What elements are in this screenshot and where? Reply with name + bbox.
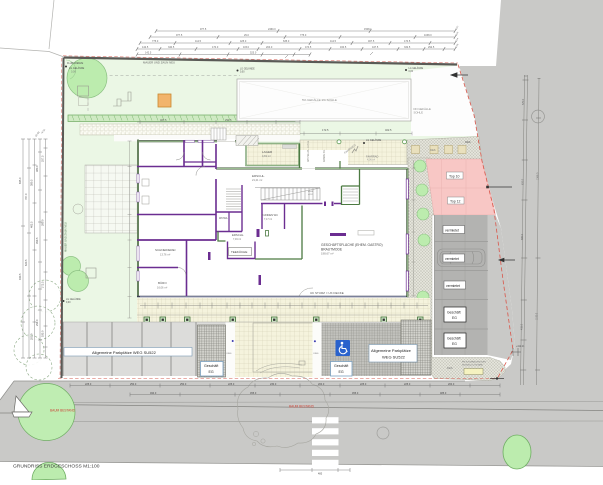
svg-text:KIES: KIES	[314, 353, 320, 355]
svg-text:200.0: 200.0	[318, 383, 325, 386]
svg-text:294.0: 294.0	[35, 319, 39, 326]
svg-text:467.5: 467.5	[368, 40, 375, 43]
svg-text:13,76 m²: 13,76 m²	[160, 253, 170, 257]
svg-text:977.5: 977.5	[176, 34, 183, 37]
svg-text:455.0: 455.0	[521, 323, 524, 330]
svg-text:0,00: 0,00	[71, 71, 76, 74]
svg-text:ERSCHL.: ERSCHL.	[232, 233, 244, 237]
svg-text:767.0: 767.0	[24, 193, 28, 200]
svg-text:KUNDEN WC: KUNDEN WC	[262, 213, 278, 217]
svg-text:845.0: 845.0	[18, 177, 22, 184]
svg-text:WC/WA: WC/WA	[219, 217, 228, 220]
svg-text:1102.0: 1102.0	[536, 312, 539, 320]
svg-text:332.5: 332.5	[404, 46, 411, 49]
svg-text:490.0: 490.0	[150, 392, 157, 395]
svg-text:Top 12: Top 12	[450, 199, 461, 203]
svg-text:Geschäft: Geschäft	[447, 311, 461, 315]
svg-text:380.5: 380.5	[30, 179, 34, 186]
svg-text:vermietet: vermietet	[445, 257, 459, 261]
svg-text:GESCHÄFTSFLÄCHE (EHEM. GASTRO): GESCHÄFTSFLÄCHE (EHEM. GASTRO)	[321, 243, 383, 247]
svg-text:172.5: 172.5	[322, 128, 329, 132]
svg-text:170.0: 170.0	[212, 46, 219, 49]
svg-text:399.5: 399.5	[35, 237, 39, 244]
svg-text:250.0: 250.0	[130, 383, 137, 386]
svg-text:142.5: 142.5	[142, 46, 149, 49]
svg-text:21,21 m²: 21,21 m²	[252, 178, 262, 182]
svg-text:MAUER UND ZAUN NEU: MAUER UND ZAUN NEU	[64, 222, 68, 252]
svg-text:467.5: 467.5	[160, 118, 167, 122]
svg-text:775.0: 775.0	[300, 34, 307, 37]
svg-text:160.5: 160.5	[340, 46, 347, 49]
svg-text:29.0: 29.0	[244, 34, 249, 37]
svg-text:940.5: 940.5	[18, 273, 22, 280]
svg-text:198,67 m²: 198,67 m²	[321, 252, 334, 256]
svg-text:EG: EG	[452, 316, 457, 320]
svg-text:1508.1: 1508.1	[364, 28, 372, 31]
svg-text:292.5: 292.5	[428, 46, 435, 49]
svg-text:575.0: 575.0	[522, 98, 525, 105]
svg-text:0,00: 0,00	[409, 71, 414, 73]
svg-text:FFL/DN.BRAUTMODEN: FFL/DN.BRAUTMODEN	[462, 361, 486, 364]
svg-text:2460.0: 2460.0	[268, 28, 276, 31]
svg-text:474.5: 474.5	[305, 46, 312, 49]
svg-text:775.0: 775.0	[152, 40, 159, 43]
svg-text:225.0: 225.0	[85, 383, 92, 386]
svg-text:112.5: 112.5	[330, 40, 337, 43]
svg-text:485.0: 485.0	[440, 392, 447, 395]
svg-text:620.5: 620.5	[24, 259, 28, 266]
svg-text:BAUM BESTAND: BAUM BESTAND	[289, 405, 315, 409]
svg-text:635.0: 635.0	[283, 40, 290, 43]
svg-text:977.5: 977.5	[200, 28, 207, 31]
svg-text:225.0: 225.0	[404, 383, 411, 386]
svg-text:272.5: 272.5	[41, 281, 45, 288]
svg-text:455.0: 455.0	[250, 392, 257, 395]
svg-text:4,06 m²: 4,06 m²	[367, 159, 375, 162]
svg-text:MAUER UND ZAUN NEU: MAUER UND ZAUN NEU	[143, 61, 175, 65]
svg-text:1268.0: 1268.0	[537, 172, 540, 180]
svg-text:KIES: KIES	[227, 353, 233, 355]
svg-text:GRUNDRISS ERDGESCHOSS M1:100: GRUNDRISS ERDGESCHOSS M1:100	[13, 464, 100, 470]
svg-text:Allgemeine Parkplätze WEG SU52: Allgemeine Parkplätze WEG SU522	[92, 350, 157, 355]
svg-text:vermietet: vermietet	[446, 284, 460, 288]
svg-text:257.5: 257.5	[41, 155, 45, 162]
svg-text:UK STURZ = UK DECKE: UK STURZ = UK DECKE	[310, 291, 344, 295]
svg-text:400: 400	[318, 473, 323, 476]
svg-text:KIES: KIES	[465, 141, 471, 144]
svg-text:7,17 m²: 7,17 m²	[264, 218, 272, 221]
svg-text:EG: EG	[209, 370, 214, 374]
svg-text:SOHLE: SOHLE	[414, 111, 424, 115]
svg-text:ERSCHL.: ERSCHL.	[252, 174, 265, 178]
svg-text:250.0: 250.0	[180, 383, 187, 386]
svg-text:KIES: KIES	[430, 149, 436, 152]
svg-text:LG GELÄNDE: LG GELÄNDE	[240, 68, 255, 71]
svg-text:142.5: 142.5	[145, 52, 152, 55]
svg-text:vermietet: vermietet	[445, 229, 459, 233]
svg-text:Top 10: Top 10	[449, 174, 460, 178]
svg-text:0,00: 0,00	[66, 302, 71, 304]
svg-text:LG GELÄNDE: LG GELÄNDE	[366, 139, 382, 142]
svg-text:LG GELÄNDE: LG GELÄNDE	[66, 298, 81, 301]
svg-text:620.0: 620.0	[522, 178, 525, 185]
svg-text:447.5: 447.5	[372, 46, 379, 49]
svg-text:4,81 m²: 4,81 m²	[262, 154, 271, 158]
svg-text:225.0: 225.0	[360, 383, 367, 386]
svg-text:225.0: 225.0	[228, 383, 235, 386]
svg-text:112.5: 112.5	[195, 40, 202, 43]
svg-text:+412.21: +412.21	[516, 346, 525, 348]
svg-text:204.0: 204.0	[266, 46, 273, 49]
svg-text:200.0: 200.0	[448, 383, 455, 386]
svg-text:525.0: 525.0	[250, 52, 257, 55]
svg-text:LAGER: LAGER	[262, 150, 273, 154]
svg-text:ABSTELLPL. 10,5 m: ABSTELLPL. 10,5 m	[307, 141, 310, 162]
svg-text:BAUM BESTAND: BAUM BESTAND	[50, 409, 76, 413]
svg-text:280.0: 280.0	[41, 219, 45, 226]
svg-text:115.0: 115.0	[243, 46, 250, 49]
svg-text:EG: EG	[339, 370, 344, 374]
svg-text:380.0: 380.0	[35, 165, 39, 172]
svg-text:SELBSQ.LUGSTAND: SELBSQ.LUGSTAND	[462, 364, 484, 367]
svg-text:WEG SU522: WEG SU522	[382, 355, 406, 360]
svg-text:16,06 m²: 16,06 m²	[157, 286, 167, 290]
svg-text:230.0: 230.0	[270, 383, 277, 386]
svg-text:462.5: 462.5	[30, 221, 34, 228]
svg-text:EG: EG	[452, 342, 457, 346]
svg-text:251.0: 251.0	[30, 333, 34, 340]
svg-text:292.5: 292.5	[225, 118, 232, 122]
svg-text:455.0: 455.0	[352, 392, 359, 395]
svg-text:Geschäft: Geschäft	[334, 364, 348, 368]
svg-text:0,00: 0,00	[240, 71, 245, 73]
svg-text:185.0: 185.0	[41, 330, 45, 337]
svg-text:7,49 m²: 7,49 m²	[233, 238, 241, 241]
svg-text:TEEKÜCHE: TEEKÜCHE	[231, 250, 247, 254]
svg-text:FLURGRENZE: FLURGRENZE	[67, 62, 84, 65]
svg-text:402.5: 402.5	[385, 128, 392, 132]
svg-text:340.5: 340.5	[168, 46, 175, 49]
svg-text:Geschäft: Geschäft	[204, 364, 218, 368]
svg-text:LG GELÄNDE: LG GELÄNDE	[409, 67, 424, 70]
svg-text:SCHNEIDEREI: SCHNEIDEREI	[155, 248, 176, 252]
svg-text:BÜRO: BÜRO	[158, 281, 167, 285]
svg-text:425.0: 425.0	[240, 40, 247, 43]
svg-text:±0.00: ±0.00	[308, 191, 314, 193]
svg-text:170.5: 170.5	[404, 40, 411, 43]
svg-text:5% GEFÄLLE 1% SOHLE: 5% GEFÄLLE 1% SOHLE	[302, 98, 337, 102]
svg-text:RAMPE 6%: RAMPE 6%	[323, 150, 326, 162]
svg-text:1038.0: 1038.0	[424, 34, 432, 37]
svg-text:Allgemeine Parkplätze: Allgemeine Parkplätze	[371, 348, 412, 353]
svg-text:Geschäft: Geschäft	[447, 337, 461, 341]
svg-text:585.0: 585.0	[521, 233, 524, 240]
svg-text:KIES: KIES	[447, 367, 453, 370]
